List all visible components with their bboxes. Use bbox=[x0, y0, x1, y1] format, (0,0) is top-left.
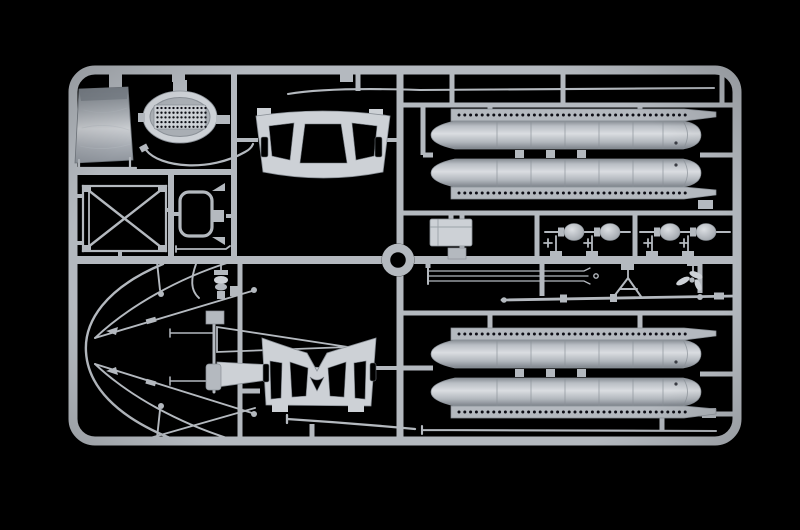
sprue-svg: Photograph of an injection-moulded plast… bbox=[0, 0, 800, 530]
photo-vignette bbox=[0, 0, 800, 530]
sprue-photograph: Photograph of an injection-moulded plast… bbox=[0, 0, 800, 530]
